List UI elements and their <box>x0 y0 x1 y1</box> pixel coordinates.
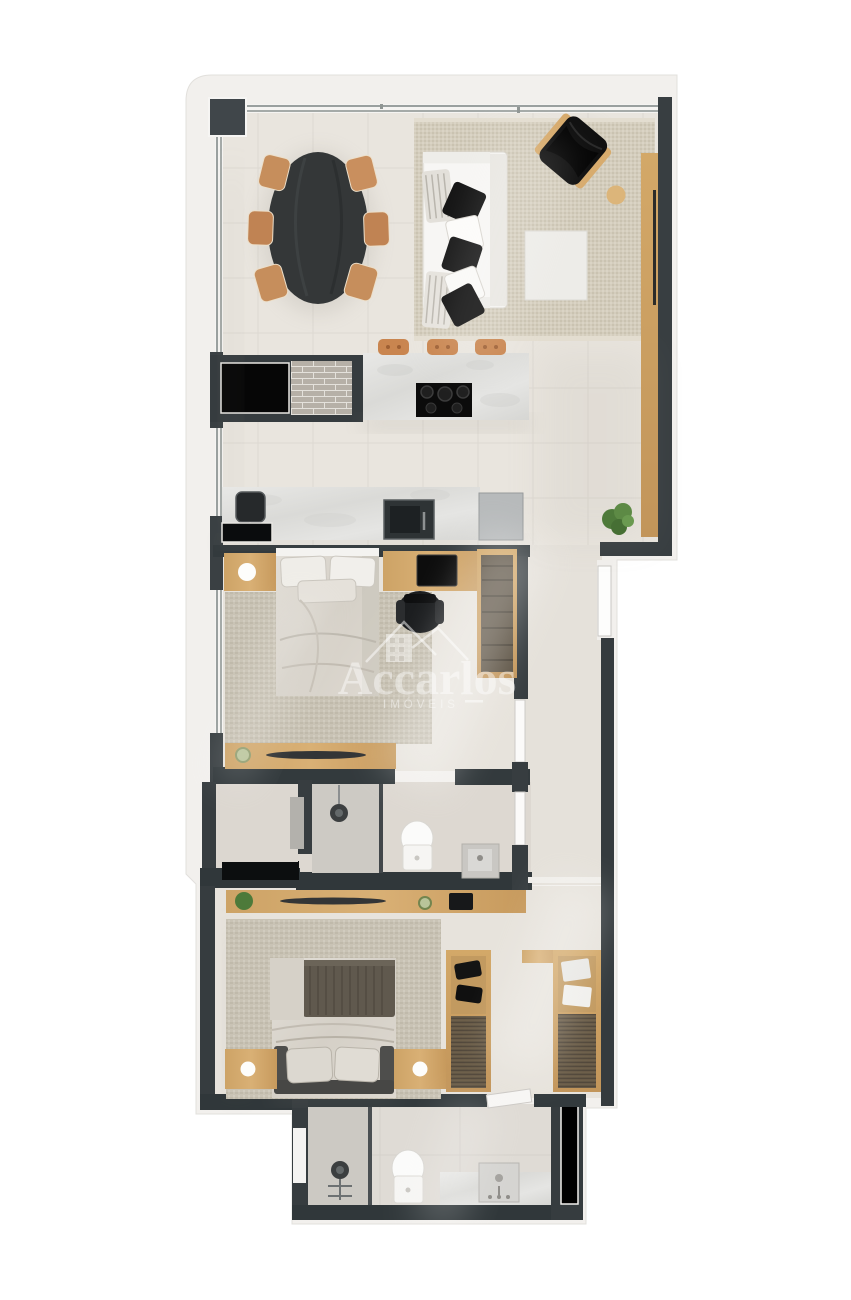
svg-text:Accarlos: Accarlos <box>338 652 517 705</box>
svg-text:IMÓVEIS: IMÓVEIS <box>383 698 459 711</box>
